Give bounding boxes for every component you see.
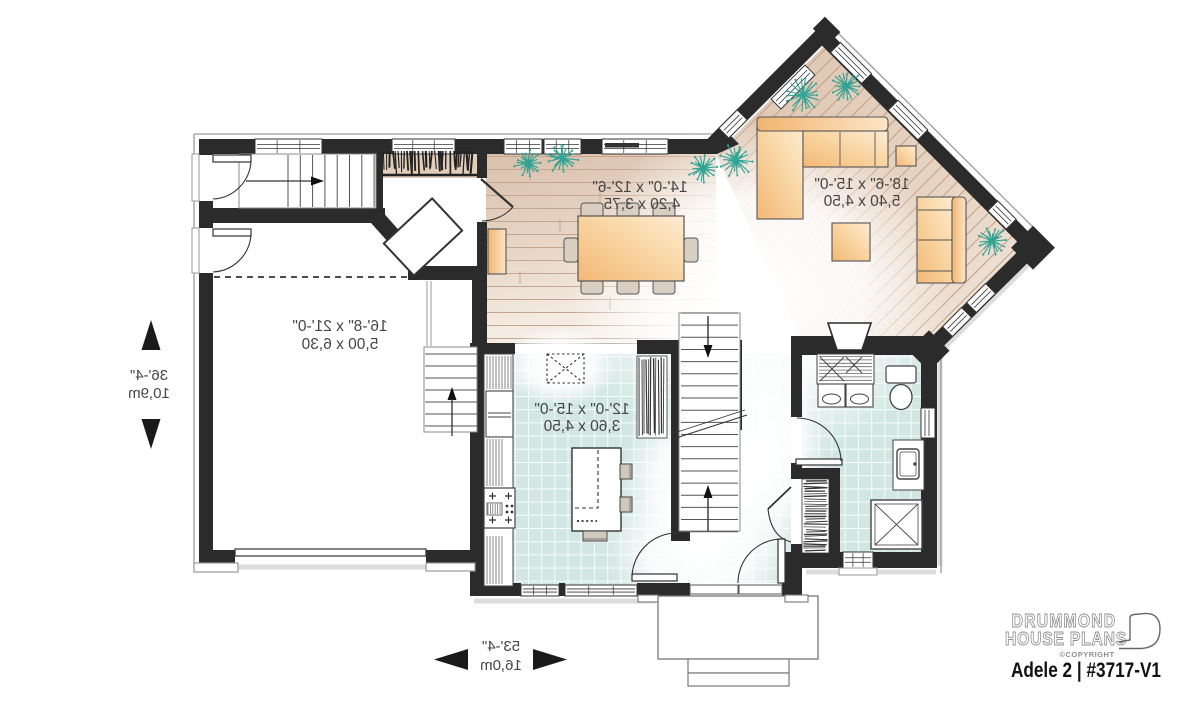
svg-text:Adele 2 | #3717-V1: Adele 2 | #3717-V1 xyxy=(1011,658,1161,682)
svg-text:36'-4": 36'-4" xyxy=(130,367,168,384)
svg-text:HOUSE PLANS: HOUSE PLANS xyxy=(1005,628,1127,650)
svg-text:5,00 x 6,30: 5,00 x 6,30 xyxy=(301,336,378,353)
svg-text:14'-0" x 12'-6": 14'-0" x 12'-6" xyxy=(592,179,687,196)
svg-text:16,0m: 16,0m xyxy=(480,657,522,674)
svg-text:3,60 x 4,50: 3,60 x 4,50 xyxy=(543,418,620,435)
svg-text:4,20 x 3,75: 4,20 x 3,75 xyxy=(604,196,681,213)
svg-text:16'-8" x 21'-0": 16'-8" x 21'-0" xyxy=(292,318,387,335)
svg-text:53'-4": 53'-4" xyxy=(482,638,520,655)
svg-text:18'-6" x 15'-0": 18'-6" x 15'-0" xyxy=(814,176,909,193)
svg-text:5,40 x 4,50: 5,40 x 4,50 xyxy=(823,193,900,210)
svg-text:12'-0" x 15'-0": 12'-0" x 15'-0" xyxy=(534,401,629,418)
svg-text:10,9m: 10,9m xyxy=(128,385,170,402)
